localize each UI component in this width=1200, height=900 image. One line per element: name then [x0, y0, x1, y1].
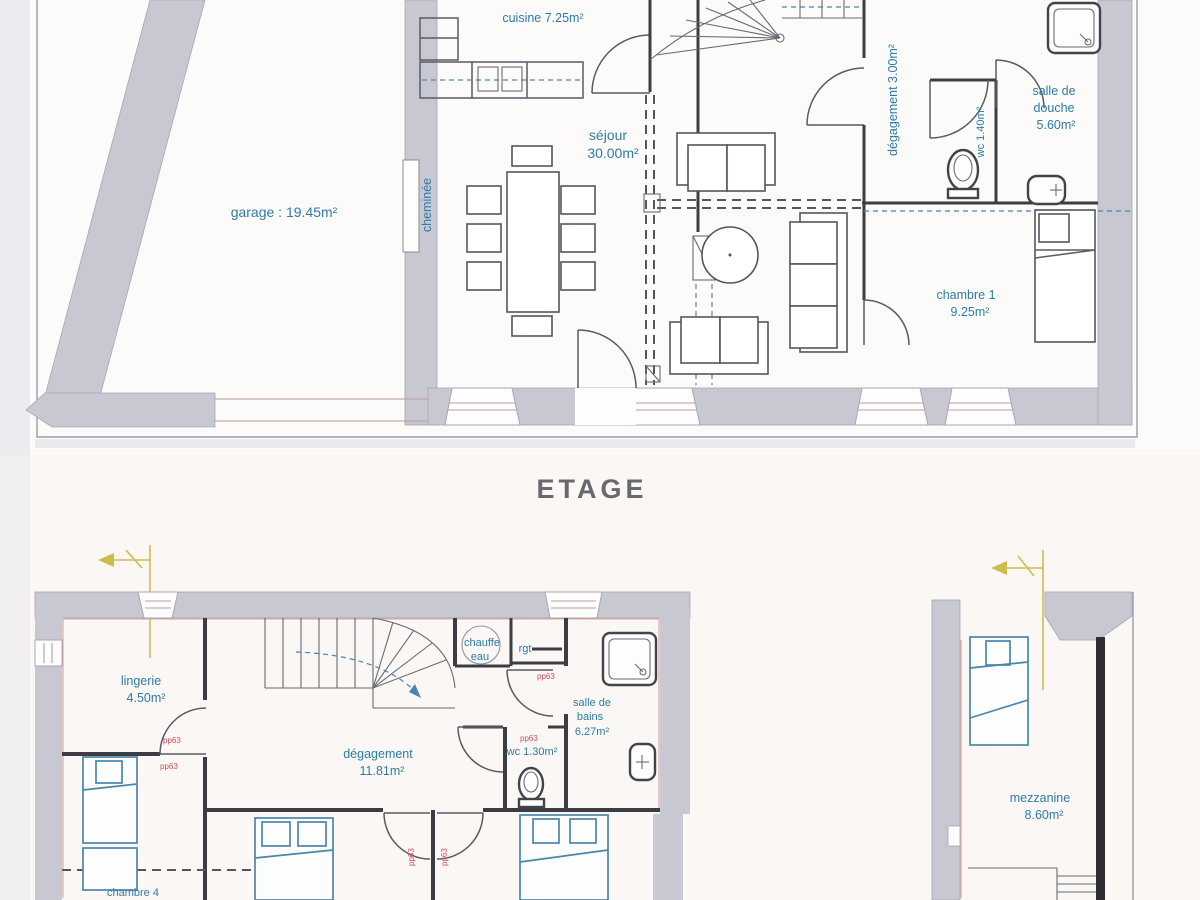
sofa-top — [677, 133, 775, 191]
douche-sink — [1028, 176, 1065, 204]
etage-right-wall — [660, 614, 690, 814]
wall-notch — [948, 826, 960, 846]
scan-shadow — [35, 439, 1135, 448]
label-chauffe-eau-1: chauffe — [464, 637, 500, 649]
label-cheminee: cheminée — [420, 178, 434, 232]
entrance-door — [578, 330, 636, 388]
etage-right-wall-lower — [653, 814, 683, 900]
label-cuisine: cuisine 7.25m² — [502, 11, 583, 25]
kitchen-counter — [420, 18, 583, 98]
window — [445, 388, 520, 425]
label-sdb-1: salle de — [573, 697, 611, 709]
entrance-opening — [575, 388, 636, 425]
label-sejour-area: 30.00m² — [587, 145, 639, 161]
etage-toilet — [519, 768, 544, 807]
window — [138, 592, 178, 618]
label-mezzanine: mezzanine — [1010, 791, 1070, 805]
house-right-wall — [1098, 0, 1132, 425]
sofa-bottom — [670, 317, 768, 374]
property-boundary — [37, 0, 1137, 437]
sofa-right — [790, 213, 847, 352]
door-tag: pp63 — [537, 672, 555, 681]
mezzanine-right-wall — [1096, 637, 1105, 900]
ground-floor-plan: garage : 19.45m² cuisine 7.25m² séjour 3… — [26, 0, 1137, 437]
floor-title: ETAGE — [536, 474, 647, 504]
fireplace-niche — [403, 160, 419, 252]
label-lingerie-area: 4.50m² — [127, 691, 166, 705]
garage-door — [215, 399, 428, 421]
kitchen-door — [592, 35, 650, 93]
label-sdb-2: bains — [577, 711, 604, 723]
label-chauffe-eau-2: eau — [471, 651, 489, 663]
door-tag: pp63 — [163, 736, 181, 745]
kitchen-sink — [478, 67, 498, 91]
window — [945, 388, 1016, 425]
window — [628, 388, 700, 425]
label-degagement-etage: dégagement — [343, 747, 413, 761]
label-douche-1: salle de — [1032, 84, 1075, 98]
bed-chambre1 — [1035, 210, 1095, 342]
label-sdb-area: 6.27m² — [575, 726, 610, 738]
label-sejour: séjour — [589, 127, 627, 143]
garage-bottom-wall — [26, 393, 215, 427]
window — [35, 640, 62, 666]
ground-toilet — [948, 150, 978, 198]
bed-mezzanine — [970, 637, 1028, 745]
house-bottom-wall — [428, 388, 1132, 425]
label-wc: wc 1.40m² — [975, 106, 987, 158]
bed-chambre4 — [83, 757, 137, 890]
label-chambre1: chambre 1 — [936, 288, 995, 302]
door-tag: pp63 — [440, 848, 449, 866]
label-lingerie: lingerie — [121, 674, 161, 688]
label-chambre4: chambre 4 — [107, 887, 159, 899]
sdb-sink — [630, 744, 655, 780]
label-chambre1-area: 9.25m² — [951, 305, 990, 319]
label-garage: garage : 19.45m² — [231, 204, 338, 220]
window — [855, 388, 928, 425]
floor-plan-scan: garage : 19.45m² cuisine 7.25m² séjour 3… — [0, 0, 1200, 900]
dining-table-set — [467, 146, 595, 336]
label-rgt: rgt — [519, 643, 532, 655]
label-degagement-area: 11.81m² — [360, 764, 405, 778]
garage-slanted-wall — [45, 0, 205, 396]
label-douche-area: 5.60m² — [1037, 118, 1076, 132]
corridor-door — [807, 68, 864, 125]
bed-bottom-right — [520, 815, 608, 900]
window — [545, 592, 602, 618]
label-degagement: dégagement 3.00m² — [886, 44, 900, 156]
floor-plan-drawing: garage : 19.45m² cuisine 7.25m² séjour 3… — [0, 0, 1200, 900]
label-mezzanine-area: 8.60m² — [1025, 808, 1064, 822]
label-wc-etage: wc 1.30m² — [506, 746, 558, 758]
living-furniture — [670, 133, 847, 374]
bed-bottom-left — [255, 818, 333, 900]
shower-tray — [1048, 3, 1100, 53]
sdb-shower — [603, 633, 656, 685]
door-tag: pp63 — [160, 762, 178, 771]
door-tag: pp63 — [407, 848, 416, 866]
door-tag: pp63 — [520, 734, 538, 743]
mezzanine-left-wall — [932, 600, 960, 900]
dining-table — [507, 172, 559, 312]
label-douche-2: douche — [1033, 101, 1074, 115]
chambre1-door — [864, 300, 909, 345]
